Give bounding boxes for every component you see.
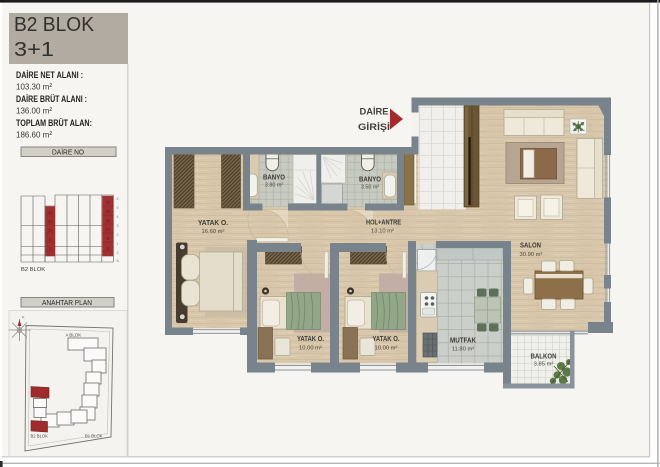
svg-text:DAİRE: DAİRE xyxy=(360,107,389,117)
svg-text:TOPLAM BRÜT ALAN:: TOPLAM BRÜT ALAN: xyxy=(16,118,92,128)
svg-text:YATAK O.: YATAK O. xyxy=(198,220,228,227)
svg-text:3+1: 3+1 xyxy=(14,38,54,61)
svg-text:16: 16 xyxy=(48,228,53,233)
svg-text:3.50 m²: 3.50 m² xyxy=(361,185,379,191)
svg-text:BANYO: BANYO xyxy=(263,175,285,182)
svg-text:ANAHTAR PLAN: ANAHTAR PLAN xyxy=(42,300,92,307)
svg-text:BANYO: BANYO xyxy=(359,177,381,184)
svg-text:11.80 m²: 11.80 m² xyxy=(452,347,475,353)
svg-text:4: 4 xyxy=(117,215,119,219)
svg-text:A BLOK: A BLOK xyxy=(66,333,82,338)
svg-text:B2 BLOK: B2 BLOK xyxy=(14,13,94,36)
svg-text:DAİRE NET ALANI :: DAİRE NET ALANI : xyxy=(16,70,83,80)
svg-text:DAİRE BRÜT ALANI :: DAİRE BRÜT ALANI : xyxy=(16,94,87,104)
svg-text:3.80 m²: 3.80 m² xyxy=(265,183,283,189)
svg-text:10.00 m²: 10.00 m² xyxy=(299,346,322,352)
svg-text:32: 32 xyxy=(48,210,53,215)
svg-text:16.60 m²: 16.60 m² xyxy=(202,229,225,235)
svg-text:MUTFAK: MUTFAK xyxy=(450,338,476,345)
svg-text:24: 24 xyxy=(48,219,53,224)
svg-text:YATAK O.: YATAK O. xyxy=(297,336,324,343)
svg-text:DAİRE NO: DAİRE NO xyxy=(52,148,85,157)
svg-text:B2 BLOK: B2 BLOK xyxy=(31,434,49,439)
svg-text:10.00 m²: 10.00 m² xyxy=(375,346,398,352)
svg-text:YATAK O.: YATAK O. xyxy=(373,336,400,343)
svg-text:B2 BLOK: B2 BLOK xyxy=(21,267,45,273)
svg-text:2: 2 xyxy=(117,233,119,237)
svg-text:BALKON: BALKON xyxy=(531,354,557,361)
svg-text:3: 3 xyxy=(117,224,119,228)
svg-text:33: 33 xyxy=(105,209,110,214)
svg-text:3.85 m²: 3.85 m² xyxy=(534,362,554,368)
svg-text:HOL+ANTRE: HOL+ANTRE xyxy=(366,220,401,227)
svg-text:6: 6 xyxy=(117,197,119,201)
svg-text:13.10 m²: 13.10 m² xyxy=(371,229,394,235)
svg-text:5: 5 xyxy=(117,206,119,210)
svg-text:25: 25 xyxy=(105,218,110,223)
svg-text:186.60 m²: 186.60 m² xyxy=(16,130,52,140)
svg-text:136.00 m²: 136.00 m² xyxy=(16,106,52,116)
svg-text:GİRİŞİ: GİRİŞİ xyxy=(358,122,390,132)
svg-text:1: 1 xyxy=(117,242,119,246)
svg-text:103.30 m²: 103.30 m² xyxy=(16,82,52,92)
svg-text:17: 17 xyxy=(105,227,110,232)
svg-text:SALON: SALON xyxy=(520,243,541,250)
svg-text:B1 BLOK: B1 BLOK xyxy=(85,434,103,439)
svg-text:30.90 m²: 30.90 m² xyxy=(520,252,543,258)
svg-text:40: 40 xyxy=(105,200,110,205)
